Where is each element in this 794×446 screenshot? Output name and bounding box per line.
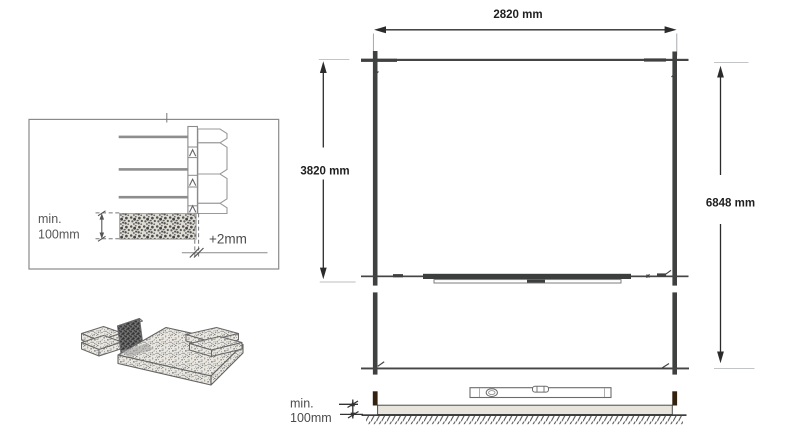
svg-text:100mm: 100mm — [38, 227, 80, 241]
svg-text:2820 mm: 2820 mm — [493, 9, 542, 21]
svg-text:min.: min. — [290, 397, 314, 411]
svg-text:6848 mm: 6848 mm — [706, 197, 755, 209]
svg-text:+2mm: +2mm — [209, 232, 247, 247]
svg-text:3820 mm: 3820 mm — [300, 166, 349, 178]
svg-text:100mm: 100mm — [290, 411, 332, 425]
svg-text:min.: min. — [38, 212, 62, 226]
